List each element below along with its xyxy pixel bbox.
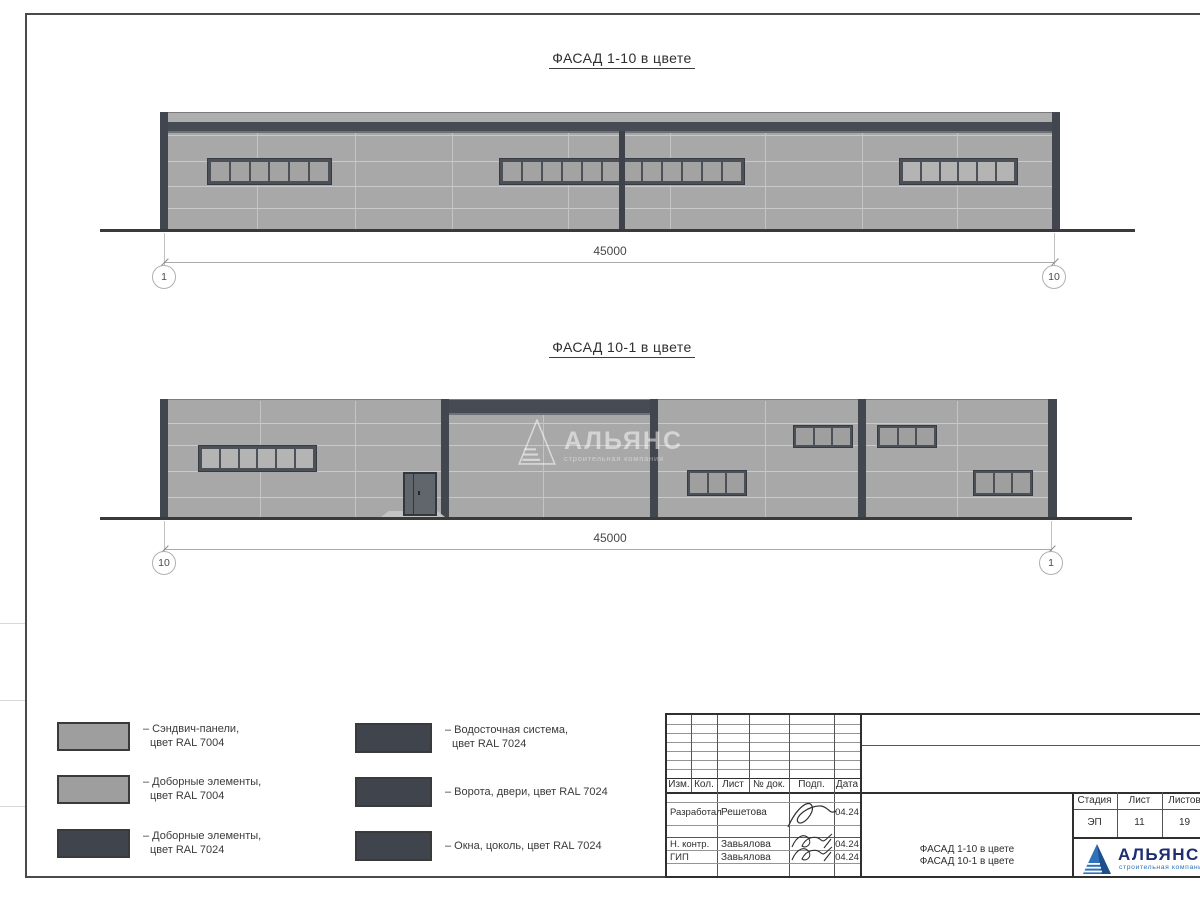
- legend-label: – Водосточная система, цвет RAL 7024: [445, 724, 568, 751]
- grid-line: [667, 863, 860, 864]
- ribbon-window: [899, 158, 1018, 185]
- grid-line: [667, 760, 860, 761]
- sheet-label: Лист: [1117, 795, 1162, 806]
- grid-line: [667, 733, 860, 734]
- window-pane: [959, 162, 976, 181]
- panel-joint-line: [452, 133, 453, 231]
- watermark-company-name: АЛЬЯНС: [564, 429, 683, 454]
- panel-joint-line: [765, 133, 766, 231]
- grid-line: [667, 792, 1200, 794]
- role-label: Разработал: [670, 807, 722, 818]
- window-pane: [922, 162, 939, 181]
- window-pane: [270, 162, 288, 181]
- dimension-label: 45000: [535, 244, 685, 258]
- axis-marker-1: 1: [1039, 551, 1063, 575]
- doc-title-line1: ФАСАД 1-10 в цвете: [862, 844, 1072, 855]
- panel-joint-line: [355, 133, 356, 231]
- company-name: АЛЬЯНС: [1118, 845, 1200, 865]
- frame-left-border: [25, 13, 27, 878]
- wall-mullion: [858, 399, 866, 518]
- watermark-triangle-logo: [518, 419, 556, 465]
- title-block: Изм. Кол. Лист № док. Подп. Дата Разрабо…: [665, 713, 1200, 878]
- facade-1-title: ФАСАД 1-10 в цвете: [44, 50, 1200, 69]
- panel-joint-line: [355, 401, 356, 518]
- ribbon-window: [198, 445, 317, 472]
- watermark-tagline: строительная компания: [564, 454, 683, 463]
- panel-joint-line: [168, 186, 1052, 187]
- bay-fascia: [449, 400, 650, 413]
- panel-joint-line: [862, 133, 863, 231]
- window-pane: [310, 162, 328, 181]
- panel-joint-line: [957, 401, 958, 518]
- legend-swatch: [355, 777, 432, 807]
- grid-line: [667, 769, 860, 770]
- window-pane: [258, 449, 275, 468]
- window-pane: [563, 162, 581, 181]
- window-pane: [623, 162, 641, 181]
- date-value: 04.24: [834, 852, 860, 863]
- facade-2-title-text: ФАСАД 10-1 в цвете: [549, 339, 694, 358]
- fascia-shadow: [449, 413, 650, 415]
- person-name: Решетова: [721, 807, 767, 818]
- watermark: АЛЬЯНС строительная компания: [518, 419, 718, 477]
- window-pane: [917, 428, 934, 445]
- window-pane: [1013, 473, 1030, 493]
- grid-line: [667, 742, 860, 743]
- person-name: Завьялова: [721, 839, 771, 850]
- corner-trim: [160, 112, 168, 231]
- grid-line: [1074, 837, 1200, 839]
- col-header-kol: Кол.: [691, 779, 717, 790]
- dimension-label: 45000: [535, 531, 685, 545]
- col-header-podp: Подп.: [789, 779, 834, 790]
- small-window: [877, 425, 937, 448]
- date-value: 04.24: [834, 807, 860, 818]
- panel-joint-line: [168, 135, 1052, 136]
- downpipe: [619, 131, 625, 231]
- window-pane: [663, 162, 681, 181]
- facade-1-drawing: [160, 112, 1060, 231]
- window-pane: [903, 162, 920, 181]
- company-tagline: строительная компания: [1119, 864, 1200, 871]
- facade-1-title-text: ФАСАД 1-10 в цвете: [549, 50, 694, 69]
- role-label: Н. контр.: [670, 839, 709, 850]
- window-pane: [296, 449, 313, 468]
- legend-swatch: [57, 722, 130, 751]
- date-value: 04.24: [834, 839, 860, 850]
- legend-swatch: [57, 829, 130, 858]
- roof-fascia: [160, 122, 1060, 131]
- person-name: Завьялова: [721, 852, 771, 863]
- window-pane: [727, 473, 744, 493]
- window-pane: [723, 162, 741, 181]
- window-pane: [880, 428, 897, 445]
- margin-tick: [0, 806, 25, 807]
- window-pane: [976, 473, 993, 493]
- window-pane: [941, 162, 958, 181]
- window-pane: [231, 162, 249, 181]
- stage-label: Стадия: [1072, 795, 1117, 806]
- window-pane: [221, 449, 238, 468]
- grid-line: [667, 751, 860, 752]
- small-window: [973, 470, 1033, 496]
- col-header-ndok: № док.: [749, 779, 789, 790]
- grid-line: [717, 715, 718, 876]
- grid-line: [862, 745, 1200, 746]
- window-pane: [211, 162, 229, 181]
- window-pane: [899, 428, 916, 445]
- window-pane: [995, 473, 1012, 493]
- legend-swatch: [57, 775, 130, 804]
- facade-2-drawing: АЛЬЯНС строительная компания: [160, 399, 1057, 518]
- col-header-data: Дата: [834, 779, 860, 790]
- corner-trim: [160, 399, 168, 518]
- grid-line: [667, 724, 860, 725]
- dimension-line: [164, 549, 1052, 550]
- doc-title-line2: ФАСАД 10-1 в цвете: [862, 856, 1072, 867]
- signature: [785, 797, 837, 831]
- corner-trim: [1052, 112, 1060, 231]
- stage-value: ЭП: [1072, 817, 1117, 828]
- ground-line: [100, 517, 1132, 520]
- dimension-line: [164, 262, 1055, 263]
- window-pane: [251, 162, 269, 181]
- window-pane: [523, 162, 541, 181]
- legend-label: – Доборные элементы, цвет RAL 7024: [143, 830, 261, 857]
- window-pane: [583, 162, 601, 181]
- wall-mullion: [441, 399, 449, 518]
- window-pane: [503, 162, 521, 181]
- axis-marker-1: 1: [152, 265, 176, 289]
- legend-label: – Ворота, двери, цвет RAL 7024: [445, 786, 608, 800]
- door-leaf: [405, 474, 413, 514]
- window-pane: [290, 162, 308, 181]
- axis-marker-10: 10: [152, 551, 176, 575]
- sheet-value: 11: [1117, 817, 1162, 828]
- axis-marker-10: 10: [1042, 265, 1066, 289]
- grid-line: [1074, 809, 1200, 810]
- door-handle: [418, 491, 420, 495]
- small-window: [793, 425, 853, 448]
- margin-tick: [0, 700, 25, 701]
- drawing-sheet: ФАСАД 1-10 в цвете 4500: [0, 0, 1200, 900]
- signature: [790, 845, 834, 863]
- window-pane: [997, 162, 1014, 181]
- window-pane: [796, 428, 813, 445]
- legend-swatch: [355, 831, 432, 861]
- window-pane: [978, 162, 995, 181]
- margin-tick: [0, 623, 25, 624]
- window-pane: [833, 428, 850, 445]
- window-pane: [277, 449, 294, 468]
- window-pane: [240, 449, 257, 468]
- col-header-izm: Изм.: [667, 779, 691, 790]
- role-label: ГИП: [670, 852, 689, 863]
- panel-joint-line: [168, 208, 1052, 209]
- frame-top-border: [25, 13, 1200, 15]
- window-pane: [683, 162, 701, 181]
- sheets-label: Листов: [1162, 795, 1200, 806]
- window-pane: [703, 162, 721, 181]
- panel-joint-line: [168, 497, 1048, 498]
- legend-label: – Доборные элементы, цвет RAL 7004: [143, 776, 261, 803]
- window-pane: [543, 162, 561, 181]
- parapet: [168, 112, 1052, 122]
- legend-label: – Окна, цоколь, цвет RAL 7024: [445, 840, 602, 854]
- window-pane: [815, 428, 832, 445]
- legend-label: – Сэндвич-панели, цвет RAL 7004: [143, 723, 239, 750]
- col-header-list: Лист: [717, 779, 749, 790]
- window-pane: [202, 449, 219, 468]
- entrance-door: [403, 472, 437, 516]
- company-triangle-logo: [1082, 843, 1112, 875]
- legend-swatch: [355, 723, 432, 753]
- ribbon-window: [207, 158, 332, 185]
- corner-trim: [1048, 399, 1057, 518]
- facade-2-title: ФАСАД 10-1 в цвете: [44, 339, 1200, 358]
- ground-line: [100, 229, 1135, 232]
- sheets-value: 19: [1162, 817, 1200, 828]
- window-pane: [643, 162, 661, 181]
- panel-joint-line: [765, 401, 766, 518]
